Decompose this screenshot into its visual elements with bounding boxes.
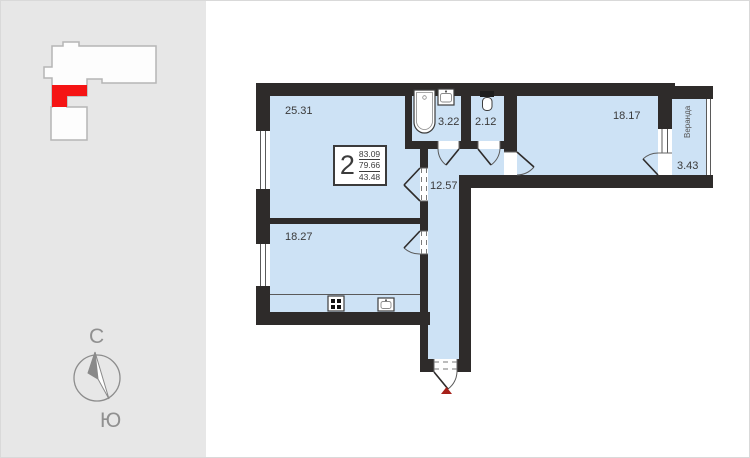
unit-total-area: 83.09 (359, 149, 380, 161)
label-kitchen: 18.27 (285, 231, 313, 243)
unit-third-area: 43.48 (359, 172, 380, 183)
stove-icon (328, 296, 344, 311)
label-living: 25.31 (285, 105, 313, 117)
unit-info-box: 2 83.09 79.66 43.48 (333, 145, 387, 186)
window-kitchen (256, 244, 270, 286)
label-bath: 3.22 (438, 116, 459, 128)
unit-rooms-count: 2 (340, 152, 355, 179)
kitchen-sink-icon (378, 298, 394, 311)
window-living (256, 131, 270, 189)
bathtub-icon (414, 90, 435, 133)
label-veranda-area: 3.43 (677, 160, 698, 172)
floorplan: 25.31 3.22 2.12 18.17 3.43 Веранда 12.57… (1, 1, 750, 458)
floorplan-viewer: С Ю (0, 0, 750, 458)
unit-areas: 83.09 79.66 43.48 (359, 149, 380, 183)
room-bedroom (517, 96, 658, 175)
label-veranda-name: Веранда (683, 105, 692, 138)
entry-marker-icon (441, 387, 452, 394)
window-veranda-glazing (707, 99, 711, 175)
label-bedroom: 18.17 (613, 110, 641, 122)
label-hallway: 12.57 (430, 180, 458, 192)
window-bedroom-veranda (658, 129, 672, 153)
bath-sink-icon (438, 89, 454, 105)
door-entry (434, 372, 457, 389)
unit-living-area: 79.66 (359, 160, 380, 172)
label-wc: 2.12 (475, 116, 496, 128)
